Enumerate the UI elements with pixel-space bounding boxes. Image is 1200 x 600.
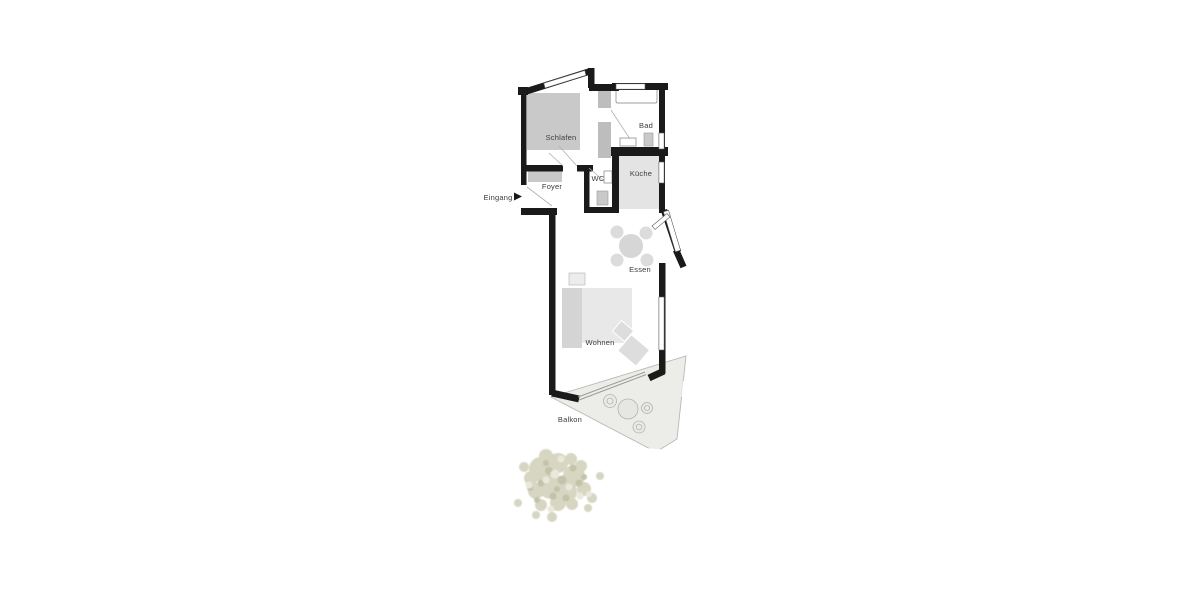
label-foyer: Foyer <box>542 182 562 191</box>
sofa-back <box>562 288 582 348</box>
wc-sink <box>604 171 612 183</box>
balcony <box>551 356 686 459</box>
balcony-slab <box>551 356 686 452</box>
balcony-table <box>618 399 638 419</box>
label-schlafen: Schlafen <box>546 133 577 142</box>
wc-toilet <box>597 191 608 205</box>
dining-chair <box>611 226 624 239</box>
label-kueche: Küche <box>630 169 652 178</box>
floor-plan: Schlafen Bad Foyer WC Küche Essen Wohnen… <box>0 0 1200 600</box>
dining-table <box>619 234 643 258</box>
bath-sink <box>620 138 636 146</box>
window-bedroom <box>544 71 586 89</box>
dining-chair <box>640 227 653 240</box>
window-kitchen <box>659 162 664 183</box>
label-essen: Essen <box>629 265 651 274</box>
furniture <box>527 86 657 366</box>
dining-set <box>611 226 654 267</box>
balcony-corner-notch <box>646 448 668 459</box>
entrance-arrow-icon <box>514 193 522 201</box>
side-table <box>569 273 585 285</box>
label-bad: Bad <box>639 121 653 130</box>
label-balkon: Balkon <box>558 415 582 424</box>
tree-icon <box>514 449 604 522</box>
bath-toilet <box>644 133 653 146</box>
window-bath-top <box>616 84 645 89</box>
label-wohnen: Wohnen <box>586 338 615 347</box>
label-wc: WC <box>592 174 605 183</box>
dining-chair <box>611 254 624 267</box>
kitchen-floor <box>619 156 659 209</box>
balcony-railing-gap <box>683 381 685 397</box>
entrance-marker: Eingang <box>484 193 522 203</box>
window-bath-right <box>659 133 664 149</box>
floor-plan-canvas: Schlafen Bad Foyer WC Küche Essen Wohnen… <box>0 0 1200 600</box>
window-living <box>659 297 664 350</box>
label-eingang: Eingang <box>484 193 513 202</box>
